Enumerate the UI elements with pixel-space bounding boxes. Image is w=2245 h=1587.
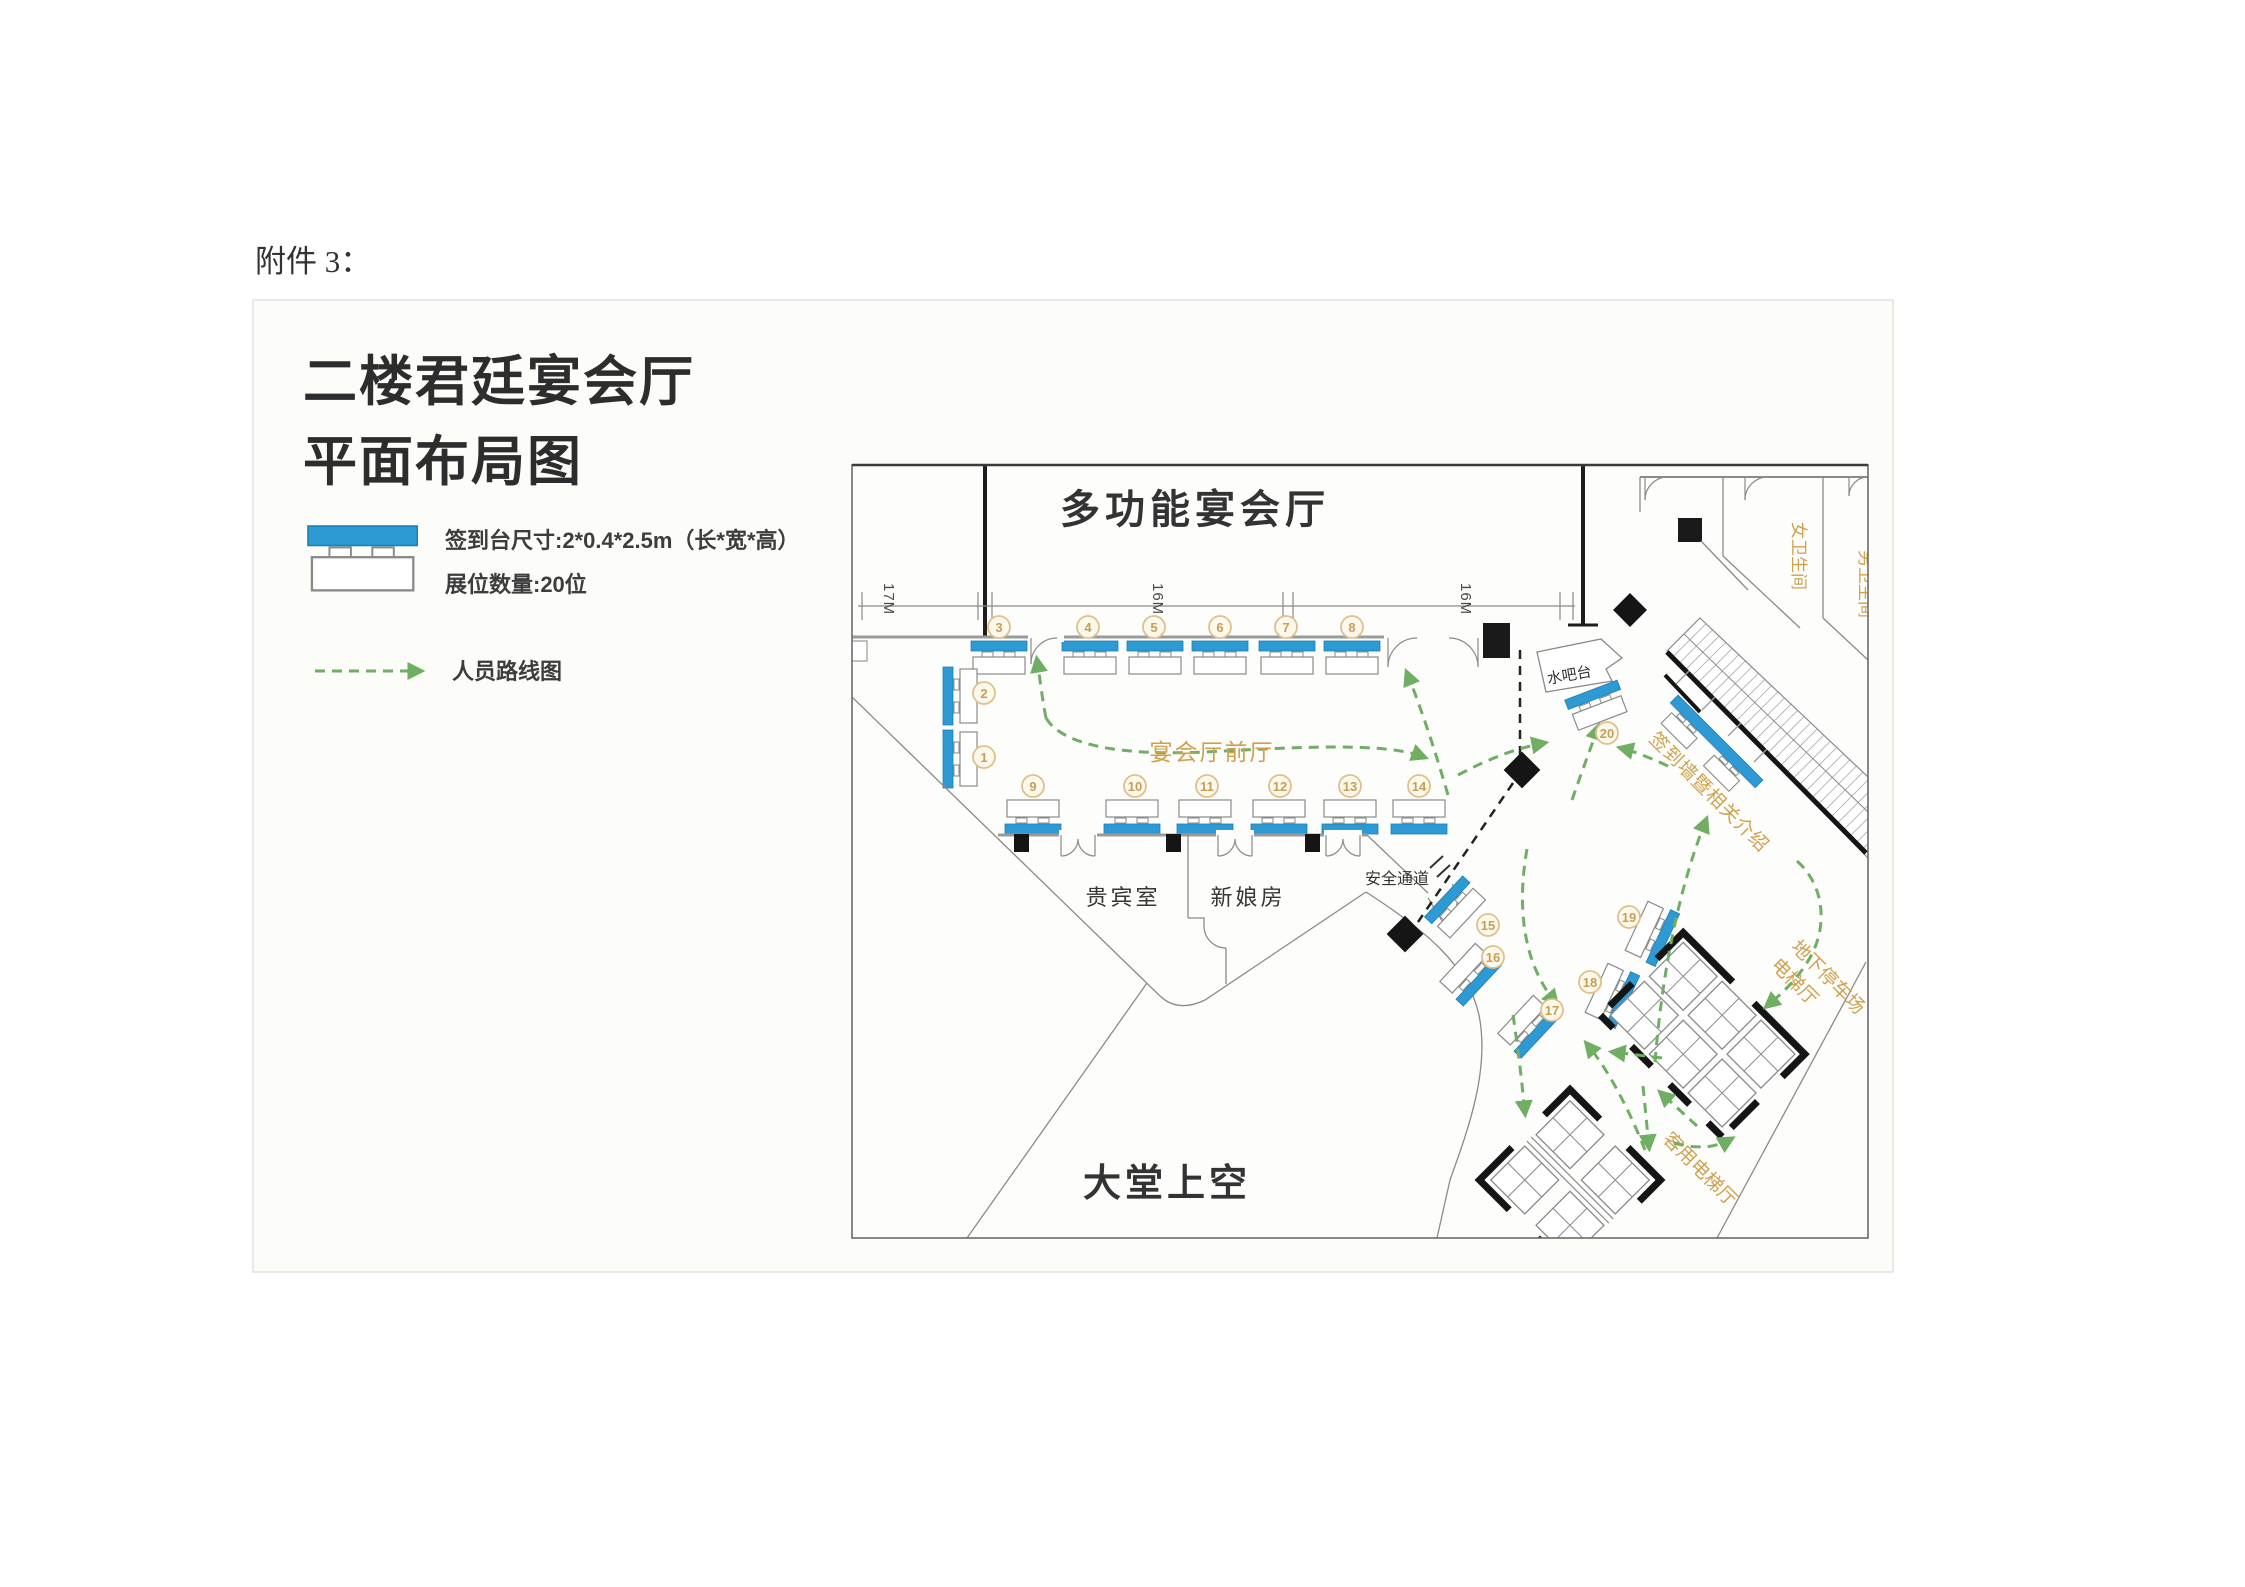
booth-number-8: 8 xyxy=(1341,616,1363,638)
lobby-void-label: 大堂上空 xyxy=(1083,1163,1251,1205)
svg-text:1: 1 xyxy=(980,750,987,765)
svg-text:9: 9 xyxy=(1029,779,1036,794)
svg-text:16: 16 xyxy=(1486,950,1500,965)
column xyxy=(1678,518,1702,542)
booth-13 xyxy=(1322,800,1378,834)
booth-number-6: 6 xyxy=(1209,616,1231,638)
svg-text:18: 18 xyxy=(1583,975,1597,990)
column xyxy=(1305,834,1320,852)
svg-text:15: 15 xyxy=(1481,918,1495,933)
booth-number-10: 10 xyxy=(1124,775,1146,797)
floor-plan: 17M 16M 16M 多功能宴会厅 xyxy=(845,465,1875,1271)
foyer-label: 宴会厅前厅 xyxy=(1150,739,1275,765)
dim-17m: 17M xyxy=(880,583,897,615)
booth-number-13: 13 xyxy=(1339,775,1361,797)
document-page: 附件 3： 二楼君廷宴会厅 平面布局图 签到台尺寸:2*0.4*2.5m（长*宽… xyxy=(0,0,2245,1587)
safety-passage-label: 安全通道 xyxy=(1365,870,1429,888)
booth-3 xyxy=(971,641,1027,674)
legend-booth-glyph xyxy=(308,526,417,590)
booth-number-15: 15 xyxy=(1477,914,1499,936)
svg-text:6: 6 xyxy=(1216,620,1223,635)
legend-route-label: 人员路线图 xyxy=(452,659,562,684)
legend-signin-spec: 签到台尺寸:2*0.4*2.5m（长*宽*高） xyxy=(444,528,800,553)
svg-text:3: 3 xyxy=(995,620,1002,635)
svg-text:5: 5 xyxy=(1150,620,1157,635)
svg-text:4: 4 xyxy=(1084,620,1092,635)
svg-text:17: 17 xyxy=(1545,1003,1559,1018)
booth-number-7: 7 xyxy=(1275,616,1297,638)
booth-number-1: 1 xyxy=(973,746,995,768)
svg-text:10: 10 xyxy=(1128,779,1142,794)
legend-booth-count: 展位数量:20位 xyxy=(445,572,587,597)
svg-text:14: 14 xyxy=(1412,779,1427,794)
booth-number-3: 3 xyxy=(988,616,1010,638)
svg-text:2: 2 xyxy=(980,686,987,701)
svg-text:8: 8 xyxy=(1348,620,1355,635)
entrance-column xyxy=(1483,623,1510,658)
figure-title-line1: 二楼君廷宴会厅 xyxy=(303,351,695,412)
svg-text:20: 20 xyxy=(1600,726,1614,741)
booth-14 xyxy=(1391,800,1447,834)
column xyxy=(1166,834,1181,852)
svg-text:11: 11 xyxy=(1200,779,1214,794)
booth-number-11: 11 xyxy=(1196,775,1218,797)
bridal-room-label: 新娘房 xyxy=(1210,885,1285,910)
vip-room-label: 贵宾室 xyxy=(1085,885,1160,910)
booth-9 xyxy=(1005,800,1061,834)
floorplan-figure: 附件 3： 二楼君廷宴会厅 平面布局图 签到台尺寸:2*0.4*2.5m（长*宽… xyxy=(0,0,2245,1587)
booth-1 xyxy=(943,730,977,788)
booth-number-19: 19 xyxy=(1618,906,1640,928)
booth-number-2: 2 xyxy=(973,682,995,704)
figure-title-line2: 平面布局图 xyxy=(303,432,583,492)
svg-text:12: 12 xyxy=(1273,779,1287,794)
booth-12 xyxy=(1251,800,1307,834)
booth-4 xyxy=(1062,641,1118,674)
womens-restroom-label: 女卫生间 xyxy=(1789,522,1808,590)
booth-7 xyxy=(1259,641,1315,674)
booth-6 xyxy=(1192,641,1248,674)
svg-text:19: 19 xyxy=(1622,910,1636,925)
booth-number-17: 17 xyxy=(1541,999,1563,1021)
column xyxy=(1014,834,1029,852)
booth-number-18: 18 xyxy=(1579,971,1601,993)
svg-text:7: 7 xyxy=(1282,620,1289,635)
dim-16m-2: 16M xyxy=(1457,583,1474,615)
booth-number-20: 20 xyxy=(1596,722,1618,744)
booth-number-9: 9 xyxy=(1022,775,1044,797)
booth-number-4: 4 xyxy=(1077,616,1099,638)
hall-label: 多功能宴会厅 xyxy=(1060,487,1330,532)
booth-number-16: 16 xyxy=(1482,946,1504,968)
booth-5 xyxy=(1127,641,1183,674)
booth-number-5: 5 xyxy=(1143,616,1165,638)
booth-10 xyxy=(1104,800,1160,834)
booth-number-14: 14 xyxy=(1408,775,1430,797)
svg-text:13: 13 xyxy=(1343,779,1357,794)
booth-11 xyxy=(1177,800,1233,834)
booth-8 xyxy=(1324,641,1380,674)
attachment-label: 附件 3： xyxy=(255,244,371,279)
dim-16m-1: 16M xyxy=(1149,583,1166,615)
booth-2 xyxy=(943,667,977,725)
booth-number-12: 12 xyxy=(1269,775,1291,797)
